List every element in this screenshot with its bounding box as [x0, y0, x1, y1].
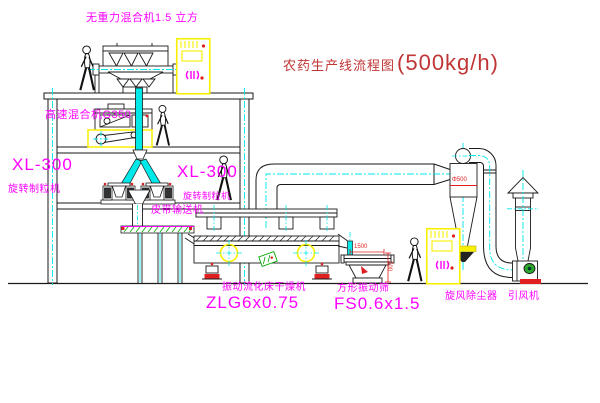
label-belt-conveyor: 皮带输送机 [151, 206, 204, 216]
dim-sieve-height: 500 [386, 261, 392, 271]
label-dryer-name: 振动流化床干燥机 [222, 283, 306, 293]
label-sieve-model: FS0.6x1.5 [334, 295, 421, 312]
label-cyclone: 旋风除尘器 [445, 292, 498, 302]
gravity-free-mixer [88, 43, 184, 93]
induced-draft-fan [513, 261, 542, 284]
person-figure [157, 105, 169, 145]
drop-pipe [136, 88, 143, 150]
label-fan: 引风机 [508, 292, 540, 302]
diagram-title: 农药生产线流程图 (500kg/h) [283, 50, 499, 76]
label-gravity-mixer: 无重力混合机1.5 立方 [86, 13, 198, 24]
title-text: 农药生产线流程图 [283, 55, 395, 74]
label-xl300-right: XL-300 [177, 163, 238, 180]
label-granulator-left: 旋转制粒机 [8, 185, 61, 195]
title-capacity: (500kg/h) [397, 50, 499, 76]
control-cabinet-top [177, 39, 210, 94]
vibrating-sieve [341, 232, 394, 283]
label-sieve-name: 方形振动筛 [337, 284, 390, 294]
label-high-speed-mixer: 高速混合机G350 [45, 110, 131, 121]
dim-sieve-length: 1500 [354, 244, 367, 250]
label-xl300-left: XL-300 [12, 156, 73, 173]
person-figure [80, 46, 94, 90]
label-dryer-model: ZLG6x0.75 [206, 294, 299, 311]
dim-cyclone-diameter: Φ500 [452, 177, 467, 183]
person-figure [408, 238, 421, 281]
fluid-bed-dryer [194, 205, 349, 279]
label-granulator-right: 旋转制粒机 [183, 192, 231, 201]
process-flow-diagram: 农药生产线流程图 (500kg/h) 无重力混合机1.5 立方 高速混合机G35… [0, 0, 600, 403]
discharge-funnel [133, 150, 147, 159]
control-cabinet-ground [427, 229, 460, 284]
